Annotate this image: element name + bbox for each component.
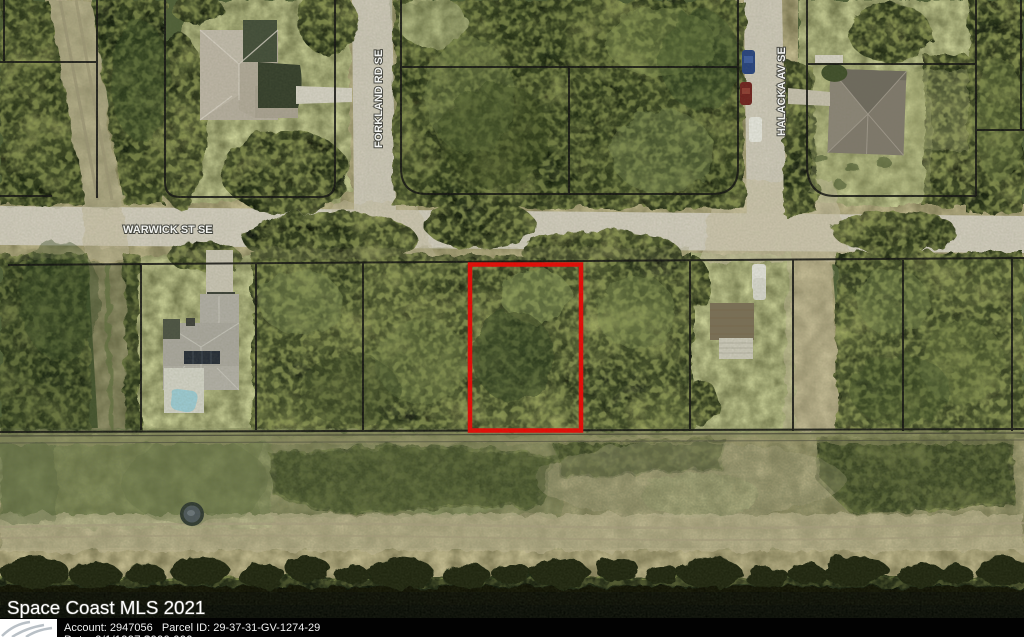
svg-text:Account: 2947056 Parcel ID:: Account: 2947056 Parcel ID: 29-37-31-GV-… [64, 622, 320, 634]
svg-text:Space Coast MLS 2021: Space Coast MLS 2021 [7, 597, 205, 618]
